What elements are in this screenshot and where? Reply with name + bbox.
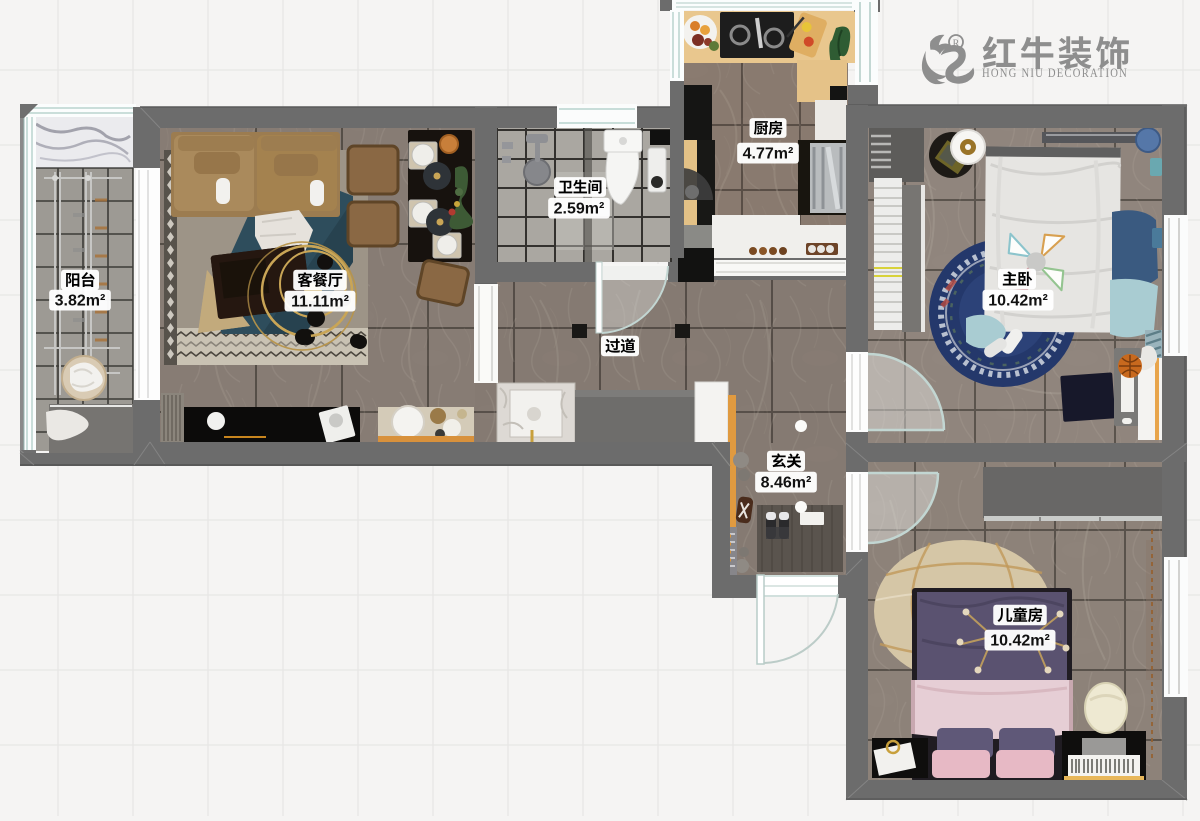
svg-text:8.46m²: 8.46m²	[761, 474, 812, 491]
svg-text:10.42m²: 10.42m²	[990, 632, 1050, 649]
svg-text:R: R	[953, 39, 960, 50]
svg-text:2.59m²: 2.59m²	[554, 200, 605, 217]
svg-text:3.82m²: 3.82m²	[55, 292, 106, 309]
svg-text:4.77m²: 4.77m²	[743, 145, 794, 162]
svg-text:11.11m²: 11.11m²	[291, 293, 349, 310]
svg-text:10.42m²: 10.42m²	[988, 292, 1048, 309]
svg-text:HONG NIU DECORATION: HONG NIU DECORATION	[982, 65, 1128, 80]
